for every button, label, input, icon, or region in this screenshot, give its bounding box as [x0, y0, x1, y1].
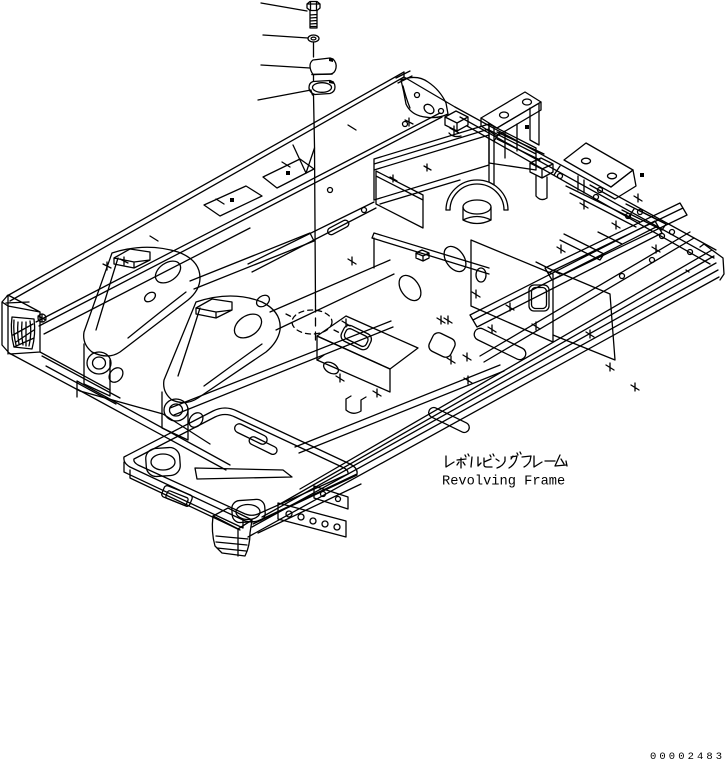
svg-text:Revolving Frame: Revolving Frame — [442, 475, 565, 490]
svg-text:00002483: 00002483 — [650, 751, 725, 760]
